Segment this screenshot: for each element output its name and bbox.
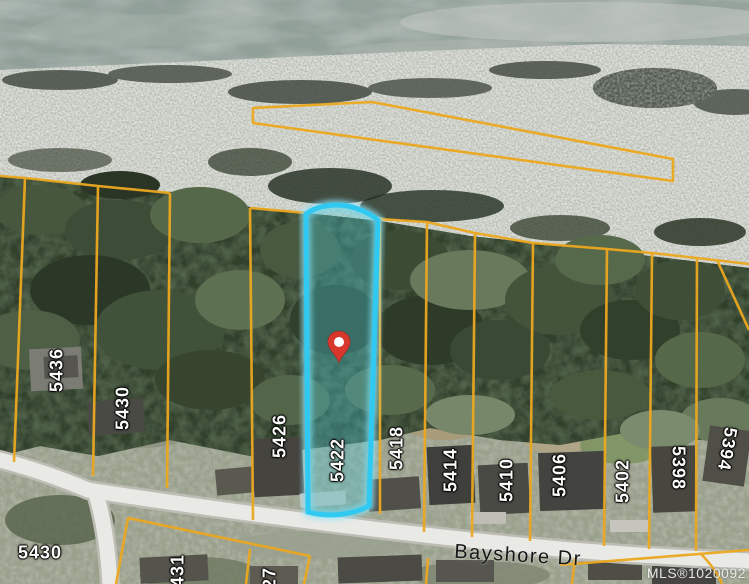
aerial-parcel-map: 5436543054265422541854145410540654025398…	[0, 0, 749, 584]
mls-watermark: MLS®1020092	[647, 565, 746, 581]
map-imagery	[0, 0, 749, 584]
highlighted-parcel-5422[interactable]	[306, 205, 378, 515]
